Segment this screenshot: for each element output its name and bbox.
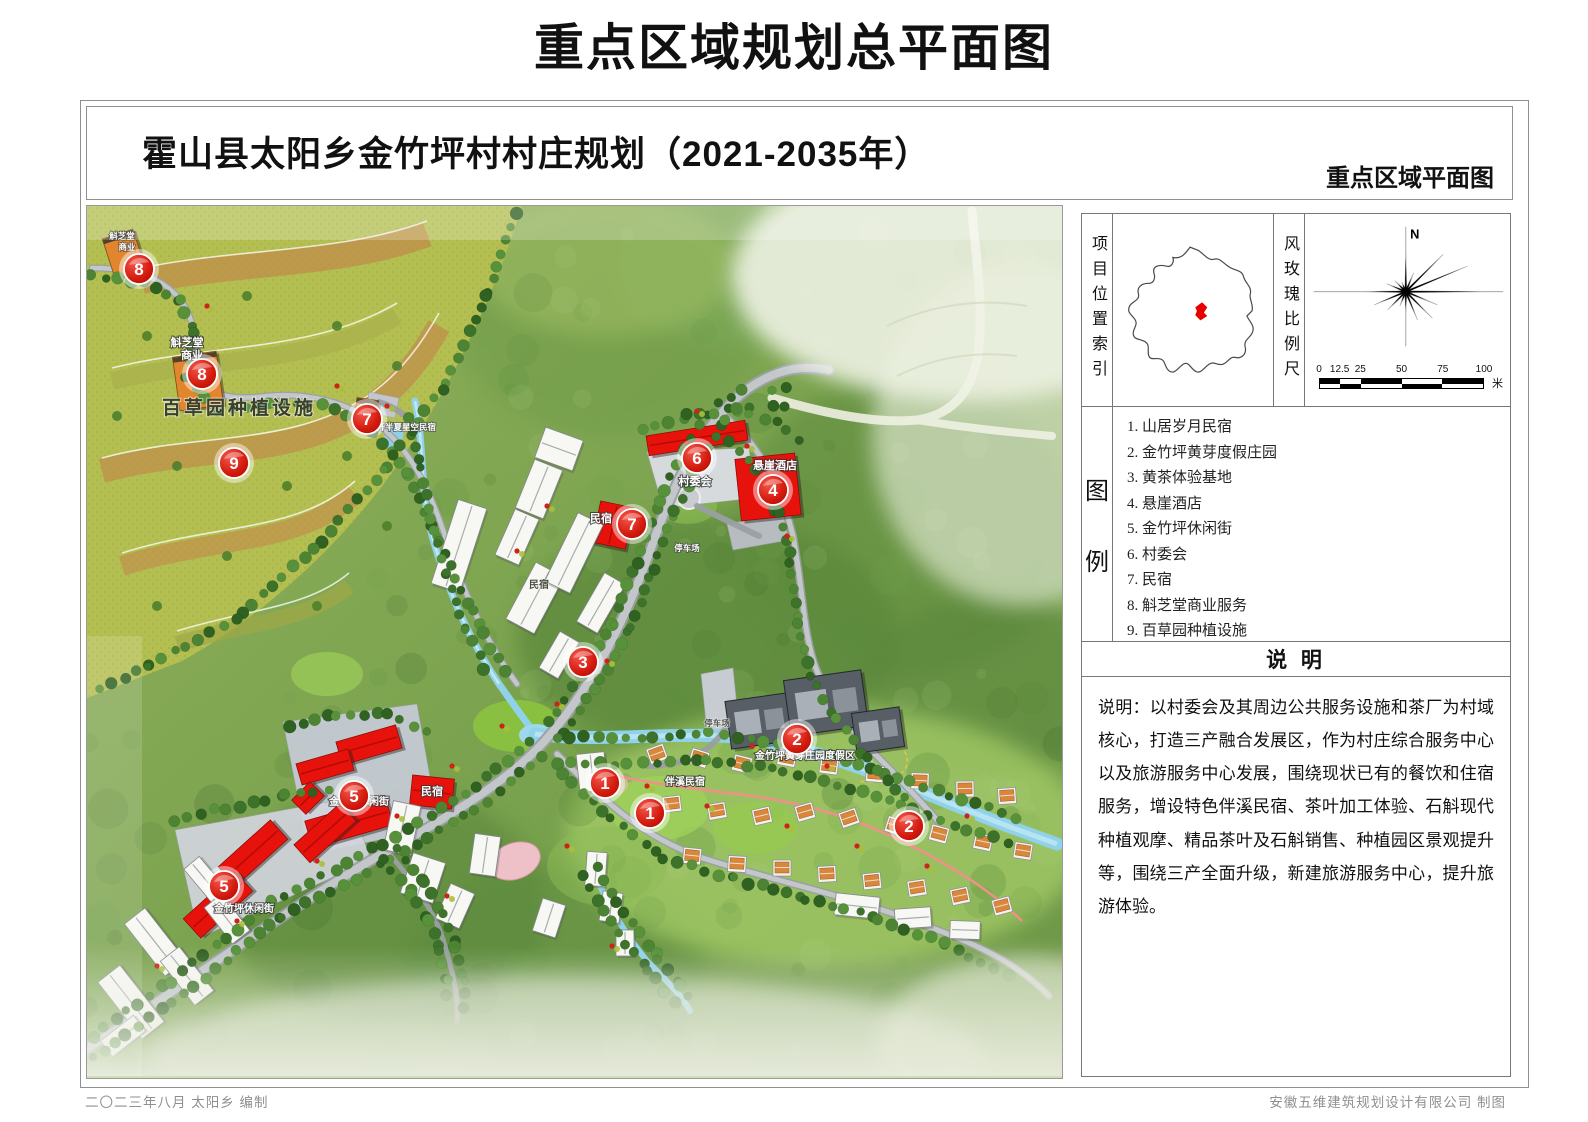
svg-text:8: 8 (134, 260, 143, 279)
footer-compiler: 二〇二三年八月 太阳乡 编制 (85, 1091, 269, 1111)
map-label: 民宿 (529, 578, 549, 591)
map-marker-4: 4 (753, 470, 793, 510)
svg-text:3: 3 (578, 653, 587, 672)
legend-item: 2. 金竹坪黄芽度假庄园 (1127, 441, 1510, 467)
svg-text:1: 1 (645, 804, 654, 823)
map-marker-1: 1 (585, 763, 625, 803)
location-index-label: 项目位置索引 (1085, 235, 1109, 385)
legend-item: 6. 村委会 (1127, 543, 1510, 569)
map-marker-2: 2 (777, 719, 817, 759)
legend-item: 3. 黄茶体验基地 (1127, 466, 1510, 492)
svg-text:4: 4 (768, 481, 778, 500)
footer-design-firm: 安徽五维建筑规划设计有限公司 制图 (1269, 1091, 1506, 1111)
legend-item: 4. 悬崖酒店 (1127, 492, 1510, 518)
svg-text:9: 9 (229, 454, 238, 473)
legend-item: 7. 民宿 (1127, 568, 1510, 594)
legend-item: 5. 金竹坪休闲街 (1127, 517, 1510, 543)
svg-text:N: N (1410, 227, 1419, 242)
county-outline (1128, 247, 1253, 372)
svg-text:6: 6 (692, 449, 701, 468)
map-label: 斛芝堂 (170, 335, 204, 349)
county-locator-map (1113, 214, 1273, 406)
windrose-label: 风玫瑰比例尺 (1277, 235, 1301, 385)
scale-bar: 012.5255075100 米 (1319, 364, 1484, 394)
legend-label-cell: 图 例 (1082, 407, 1113, 641)
svg-text:2: 2 (792, 730, 801, 749)
map-label: 停车场 (704, 718, 730, 728)
map-marker-2: 2 (889, 806, 929, 846)
plan-sheet: 霍山县太阳乡金竹坪村村庄规划（2021-2035年） 重点区域平面图 (80, 100, 1529, 1088)
map-marker-1: 1 (630, 793, 670, 833)
map-label: 伴溪民宿 (664, 775, 705, 788)
windrose-cell: N 012.5255075100 米 (1305, 214, 1510, 406)
wind-rose: N (1305, 214, 1510, 354)
subtitle-box: 霍山县太阳乡金竹坪村村庄规划（2021-2035年） 重点区域平面图 (86, 106, 1513, 200)
svg-text:7: 7 (362, 410, 371, 429)
project-location-highlight (1195, 302, 1207, 320)
map-label: 民宿 (421, 784, 443, 798)
svg-text:2: 2 (904, 817, 913, 836)
map-label: 停车场 (674, 543, 700, 553)
legend-item: 1. 山居岁月民宿 (1127, 415, 1510, 441)
svg-text:5: 5 (349, 787, 358, 806)
map-marker-6: 6 (677, 438, 717, 478)
map-marker-8: 8 (119, 249, 159, 289)
scale-unit: 米 (1492, 375, 1503, 391)
sheet-corner-label: 重点区域平面图 (1326, 158, 1494, 193)
map-label: 百草园种植设施 (162, 396, 316, 419)
legend-label-char-2: 例 (1085, 542, 1109, 577)
map-marker-8: 8 (182, 354, 222, 394)
legend-label-char-1: 图 (1085, 471, 1109, 506)
index-windrose-row: 项目位置索引 风玫瑰比例尺 N 012.5255075100 米 (1082, 214, 1510, 407)
master-plan-map: 百草园种植设施斛芝堂商业斛芝堂商业花开半夏星空民宿村委会悬崖酒店民宿民宿停车场停… (86, 205, 1063, 1079)
svg-text:5: 5 (219, 877, 228, 896)
svg-text:7: 7 (627, 515, 636, 534)
page-title: 重点区域规划总平面图 (0, 8, 1588, 80)
right-panel: 项目位置索引 风玫瑰比例尺 N 012.5255075100 米 (1081, 213, 1511, 1077)
plan-subtitle: 霍山县太阳乡金竹坪村村庄规划（2021-2035年） (142, 107, 930, 199)
legend-row: 图 例 1. 山居岁月民宿2. 金竹坪黄芽度假庄园3. 黄茶体验基地4. 悬崖酒… (1082, 407, 1510, 642)
map-marker-9: 9 (214, 443, 254, 483)
legend-list: 1. 山居岁月民宿2. 金竹坪黄芽度假庄园3. 黄茶体验基地4. 悬崖酒店5. … (1113, 407, 1510, 641)
windrose-label-cell: 风玫瑰比例尺 (1273, 214, 1305, 406)
legend-item: 9. 百草园种植设施 (1127, 619, 1510, 645)
map-marker-5: 5 (334, 776, 374, 816)
scale-tick-labels: 012.5255075100 (1319, 364, 1484, 378)
map-label: 悬崖酒店 (752, 458, 797, 472)
svg-text:1: 1 (600, 774, 609, 793)
legend-item: 8. 斛芝堂商业服务 (1127, 594, 1510, 620)
map-label: 民宿 (590, 511, 612, 525)
notes-text: 说明：以村委会及其周边公共服务设施和茶厂为村域核心，打造三产融合发展区，作为村庄… (1082, 677, 1510, 1076)
map-marker-5: 5 (204, 866, 244, 906)
map-marker-3: 3 (563, 642, 603, 682)
map-label: 斛芝堂 (108, 231, 135, 241)
map-marker-7: 7 (347, 399, 387, 439)
notes-header: 说 明 (1082, 642, 1510, 677)
scale-bar-graphic: 米 (1319, 378, 1484, 389)
location-index-label-cell: 项目位置索引 (1082, 214, 1113, 406)
svg-text:8: 8 (197, 365, 206, 384)
map-marker-7: 7 (612, 504, 652, 544)
